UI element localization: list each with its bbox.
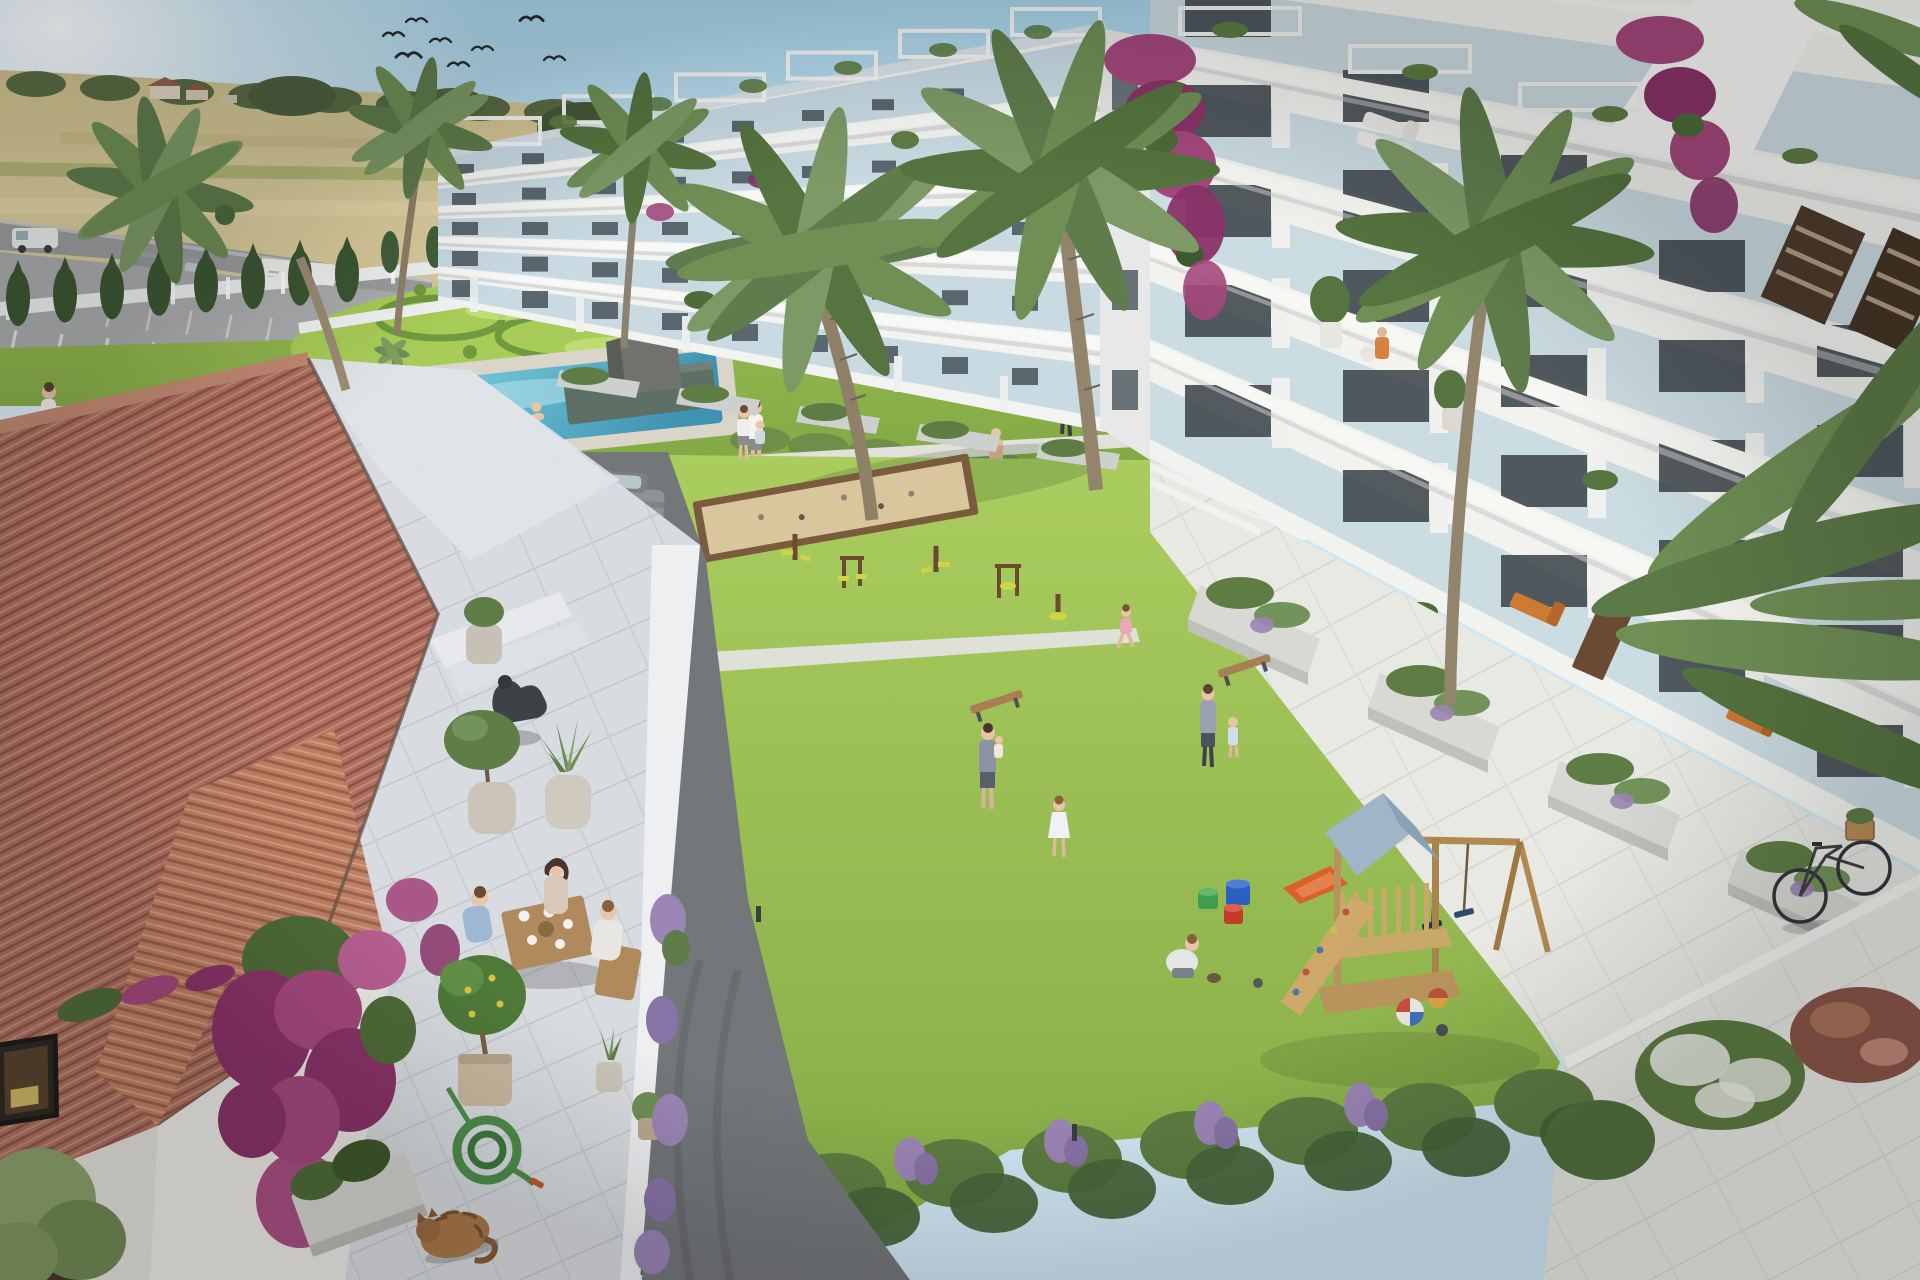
vignette [0, 0, 1920, 1280]
layer-atmosphere [0, 0, 1920, 1280]
architectural-rendering-canvas [0, 0, 1920, 1280]
rendered-scene [0, 0, 1920, 1280]
